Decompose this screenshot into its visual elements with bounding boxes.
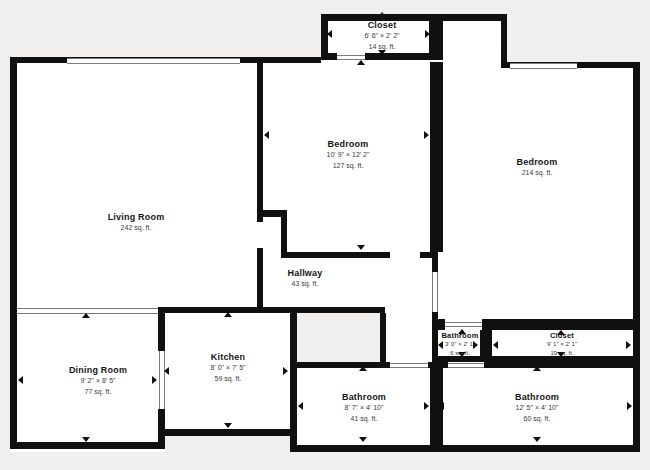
room-label-dining-room: Dining Room 9' 2" × 8' 5" 77 sq. ft. (69, 365, 127, 397)
wall (281, 252, 390, 258)
wall (160, 307, 385, 313)
exterior-notch (297, 313, 380, 368)
door-opening (432, 272, 438, 312)
wall (257, 248, 263, 313)
dimension-arrow-down-icon (557, 352, 565, 357)
dimension-arrow-right-icon (473, 341, 478, 349)
dimension-arrow-down-icon (533, 437, 541, 442)
wall (380, 313, 386, 368)
dimension-arrow-up-icon (533, 366, 541, 371)
room-label-kitchen: Kitchen 8' 0" × 7' 5" 59 sq. ft. (210, 352, 245, 384)
dimension-arrow-left-icon (438, 341, 443, 349)
wall (633, 62, 640, 452)
door-opening (159, 351, 165, 409)
room-name: Bedroom (327, 139, 370, 150)
room-area: 59 sq. ft. (210, 374, 245, 385)
dimension-arrow-left-icon (264, 131, 269, 139)
exterior-notch (165, 436, 291, 470)
door-opening (448, 363, 484, 368)
room-dimensions: 10' 9" × 12' 2" (327, 150, 370, 161)
dimension-arrow-up-icon (82, 313, 90, 318)
room-label-bathroom-bottom-right: Bathroom 12' 5" × 4' 10" 60 sq. ft. (515, 392, 559, 424)
wall (321, 14, 507, 21)
dimension-arrow-left-icon (18, 376, 23, 384)
dimension-arrow-right-icon (626, 341, 631, 349)
dimension-arrow-down-icon (357, 245, 365, 250)
window (67, 58, 240, 64)
dimension-arrow-right-icon (424, 131, 429, 139)
wall (437, 319, 445, 330)
dimension-arrow-up-icon (458, 329, 466, 334)
dimension-arrow-down-icon (378, 50, 386, 55)
door-opening (445, 322, 482, 327)
room-label-living-room: Living Room 242 sq. ft. (108, 212, 165, 234)
room-name: Closet (364, 20, 399, 31)
window (510, 63, 577, 69)
wall (293, 445, 640, 452)
room-name: Kitchen (210, 352, 245, 363)
dimension-arrow-down-icon (82, 437, 90, 442)
dimension-arrow-left-icon (439, 402, 444, 410)
dimension-arrow-down-icon (458, 352, 466, 357)
room-dimensions: 9' 1" × 2' 1" (547, 340, 577, 349)
dimension-arrow-right-icon (424, 402, 429, 410)
room-name: Bathroom (515, 392, 559, 403)
dimension-arrow-left-icon (298, 402, 303, 410)
dimension-arrow-up-icon (357, 60, 365, 65)
wall (257, 57, 263, 222)
room-label-hallway: Hallway 43 sq. ft. (288, 268, 323, 290)
room-label-bedroom-right: Bedroom 214 sq. ft. (517, 157, 558, 179)
wall (501, 14, 507, 68)
dimension-arrow-up-icon (557, 330, 565, 335)
room-dimensions: 6' 6" × 2' 2" (364, 31, 399, 42)
wall (281, 217, 287, 258)
wall (158, 307, 165, 351)
room-name: Hallway (288, 268, 323, 279)
dimension-arrow-left-icon (164, 367, 169, 375)
wall (482, 319, 633, 330)
wall (10, 57, 17, 449)
room-dimensions: 8' 0" × 7' 5" (210, 363, 245, 374)
room-dimensions: 9' 2" × 8' 5" (69, 376, 127, 387)
room-label-closet-top: Closet 6' 6" × 2' 2" 14 sq. ft. (364, 20, 399, 52)
room-label-bedroom-middle: Bedroom 10' 9" × 12' 2" 127 sq. ft. (327, 139, 370, 171)
room-area: 41 sq. ft. (342, 414, 386, 425)
dimension-arrow-right-icon (627, 402, 632, 410)
room-area: 43 sq. ft. (288, 279, 323, 290)
wall (430, 62, 443, 252)
room-name: Living Room (108, 212, 165, 223)
dimension-arrow-up-icon (224, 312, 232, 317)
room-area: 214 sq. ft. (517, 168, 558, 179)
room-label-bathroom-bottom-left: Bathroom 8' 7" × 4' 10" 41 sq. ft. (342, 392, 386, 424)
dimension-arrow-up-icon (378, 12, 386, 17)
room-dimensions: 12' 5" × 4' 10" (515, 403, 559, 414)
wall (420, 252, 438, 258)
wall (290, 307, 297, 452)
dimension-arrow-up-icon (359, 366, 367, 371)
wall (158, 429, 296, 436)
dimension-arrow-right-icon (152, 376, 157, 384)
room-area: 127 sq. ft. (327, 161, 370, 172)
dimension-arrow-down-icon (359, 437, 367, 442)
room-name: Bedroom (517, 157, 558, 168)
dimension-arrow-right-icon (283, 367, 288, 375)
door-opening (390, 363, 428, 368)
room-name: Dining Room (69, 365, 127, 376)
room-name: Bathroom (342, 392, 386, 403)
dimension-arrow-left-icon (327, 30, 332, 38)
room-area: 60 sq. ft. (515, 414, 559, 425)
dimension-arrow-left-icon (493, 341, 498, 349)
wall (290, 362, 390, 368)
room-dimensions: 8' 7" × 4' 10" (342, 403, 386, 414)
wall (10, 442, 165, 449)
floor-plan: Closet 6' 6" × 2' 2" 14 sq. ft. Bedroom … (0, 0, 650, 470)
wall (263, 210, 287, 217)
room-area: 242 sq. ft. (108, 223, 165, 234)
dimension-arrow-right-icon (425, 30, 430, 38)
dimension-arrow-down-icon (224, 423, 232, 428)
room-area: 77 sq. ft. (69, 387, 127, 398)
